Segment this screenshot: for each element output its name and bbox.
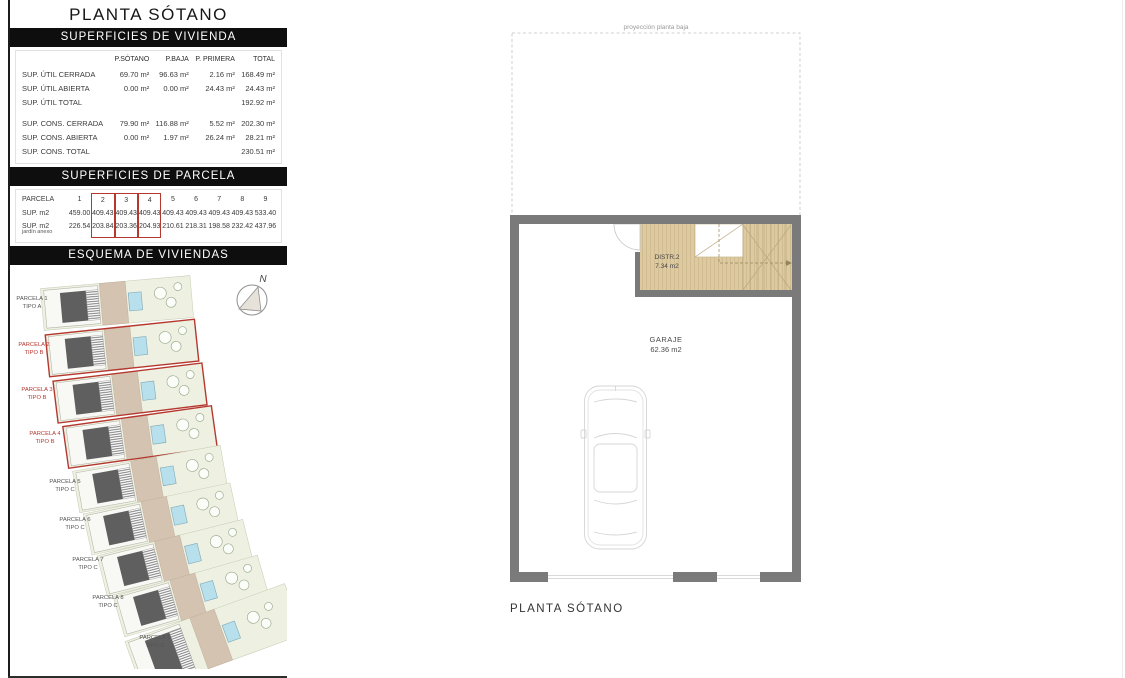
cell: 0.00 m²: [110, 131, 151, 145]
cell: 96.63 m²: [151, 67, 190, 81]
table-row: SUP. CONS. ABIERTA 0.00 m² 1.97 m² 26.24…: [20, 131, 277, 145]
sheet: { "page": { "title": "PLANTA SÓTANO" }, …: [0, 0, 1125, 678]
parcela-number: 3: [115, 193, 138, 207]
site-plan-parcels: PARCELA 1TIPO APARCELA 2TIPO BPARCELA 3T…: [16, 275, 287, 668]
col-header-baja: P.BAJA: [151, 54, 190, 67]
door-swing: [614, 224, 640, 250]
col-header: [20, 54, 110, 67]
floorplan-svg: proyección planta baja DISTR.2 7.34 m2: [490, 15, 830, 627]
parcel-tipo-label: TIPO C: [65, 525, 84, 531]
vivienda-table-box: P.SÓTANO P.BAJA P. PRIMERA TOTAL SUP. ÚT…: [15, 50, 282, 164]
parcela-number: 5: [161, 193, 184, 207]
plan-caption: PLANTA SÓTANO: [510, 602, 624, 615]
parcela-table: PARCELA123456789SUP. m2459.00409.43409.4…: [20, 193, 277, 238]
parcela-number: 2: [91, 193, 114, 207]
parcela-jardin-value: 204.93: [138, 220, 161, 238]
parcel-tipo-label: TIPO B: [27, 395, 46, 401]
row-label: SUP. CONS. TOTAL: [20, 145, 110, 159]
row-label: SUP. ÚTIL ABIERTA: [20, 81, 110, 95]
cell: 0.00 m²: [110, 81, 151, 95]
parcela-table-box: PARCELA123456789SUP. m2459.00409.43409.4…: [15, 189, 282, 243]
parcel-label: PARCELA 2: [18, 342, 49, 348]
cell: 5.52 m²: [191, 109, 237, 131]
parcela-row-label: SUP. m2: [20, 207, 68, 220]
parcel-label: PARCELA 6: [59, 517, 90, 523]
cell: 1.97 m²: [151, 131, 190, 145]
vivienda-table: P.SÓTANO P.BAJA P. PRIMERA TOTAL SUP. ÚT…: [20, 54, 277, 159]
cell: 192.92 m²: [237, 95, 277, 109]
cell: [110, 95, 151, 109]
upper-floor-projection-outline: [512, 33, 800, 217]
cell: [191, 95, 237, 109]
parcel-label: PARCELA 1: [16, 296, 47, 302]
parcela-sup-value: 409.43: [231, 207, 254, 220]
parcel-label: PARCELA 8: [92, 595, 123, 601]
distr-room: DISTR.2 7.34 m2: [640, 224, 792, 290]
parcela-sup-value: 409.43: [138, 207, 161, 220]
floorplan-drawing: proyección planta baja DISTR.2 7.34 m2: [490, 15, 830, 632]
parcela-sup-value: 409.43: [208, 207, 231, 220]
parcela-sup-value: 409.43: [115, 207, 138, 220]
table-header-row: P.SÓTANO P.BAJA P. PRIMERA TOTAL: [20, 54, 277, 67]
garage-door-lines: [548, 576, 760, 579]
col-header-total: TOTAL: [237, 54, 277, 67]
cell: 168.49 m²: [237, 67, 277, 81]
parcela-number: 1: [68, 193, 91, 207]
parcel-label: PARCELA 4: [29, 431, 61, 437]
cell: [110, 145, 151, 159]
parcel-tipo-label: TIPO C: [98, 603, 117, 609]
col-header-sotano: P.SÓTANO: [110, 54, 151, 67]
cell: 24.43 m²: [237, 81, 277, 95]
page-border-right: [1122, 0, 1123, 678]
parcela-jardin-value: 203.36: [115, 220, 138, 238]
room-area-garage: 62.36 m2: [650, 345, 681, 354]
parcel-label: PARCELA 7: [72, 557, 103, 563]
parcela-jardin-value: 203.84: [91, 220, 114, 238]
info-panel: PLANTA SÓTANO SUPERFICIES DE VIVIENDA P.…: [8, 0, 287, 676]
cell: 26.24 m²: [191, 131, 237, 145]
svg-text:N: N: [259, 274, 267, 285]
row-label: SUP. ÚTIL TOTAL: [20, 95, 110, 109]
parcel-tipo-label: TIPO C: [55, 487, 74, 493]
cell: 116.88 m²: [151, 109, 190, 131]
room-area-distr: 7.34 m2: [655, 263, 679, 270]
col-header-primera: P. PRIMERA: [191, 54, 237, 67]
cell: 28.21 m²: [237, 131, 277, 145]
site-plan: PARCELA 1TIPO APARCELA 2TIPO BPARCELA 3T…: [10, 267, 287, 669]
parcela-sup-value: 533.40: [254, 207, 277, 220]
parcel-label: PARCELA 5: [49, 479, 80, 485]
section-header-superficies-vivienda: SUPERFICIES DE VIVIENDA: [10, 28, 287, 47]
parcela-row-label: SUP. m2jardín anexo: [20, 220, 68, 238]
north-arrow-icon: N: [237, 274, 267, 315]
row-label: SUP. ÚTIL CERRADA: [20, 67, 110, 81]
cell: [151, 145, 190, 159]
cell: [191, 145, 237, 159]
section-header-esquema-viviendas: ESQUEMA DE VIVIENDAS: [10, 246, 287, 265]
parcela-sup-value: 409.43: [91, 207, 114, 220]
table-row: SUP. ÚTIL ABIERTA 0.00 m² 0.00 m² 24.43 …: [20, 81, 277, 95]
room-name-garage: GARAJE: [649, 335, 682, 344]
cell: 230.51 m²: [237, 145, 277, 159]
table-row: SUP. ÚTIL TOTAL 192.92 m²: [20, 95, 277, 109]
parcela-number: 9: [254, 193, 277, 207]
parcel-tipo-label: TIPO B: [35, 439, 54, 445]
parcela-sup-value: 409.43: [161, 207, 184, 220]
parcel-label: PARCELA 9: [139, 635, 170, 641]
parcela-sup-value: 409.43: [185, 207, 208, 220]
cell: 202.30 m²: [237, 109, 277, 131]
parcela-number: 7: [208, 193, 231, 207]
cell: [151, 95, 190, 109]
parcela-jardin-value: 198.58: [208, 220, 231, 238]
parcela-jardin-value: 210.61: [161, 220, 184, 238]
room-name-distr: DISTR.2: [655, 254, 680, 261]
table-row: SUP. CONS. TOTAL 230.51 m²: [20, 145, 277, 159]
projection-label: proyección planta baja: [623, 24, 688, 31]
parcela-row-label: PARCELA: [20, 193, 68, 207]
car-icon: [581, 386, 650, 549]
parcela-jardin-value: 218.31: [185, 220, 208, 238]
cell: 0.00 m²: [151, 81, 190, 95]
parcel-label: PARCELA 3: [21, 387, 52, 393]
parcela-jardin-value: 232.42: [231, 220, 254, 238]
section-header-superficies-parcela: SUPERFICIES DE PARCELA: [10, 167, 287, 186]
table-row: SUP. CONS. CERRADA 79.90 m² 116.88 m² 5.…: [20, 109, 277, 131]
parcel-tipo-label: TIPO C: [78, 565, 97, 571]
parcela-number: 8: [231, 193, 254, 207]
parcela-number: 6: [185, 193, 208, 207]
row-label: SUP. CONS. ABIERTA: [20, 131, 110, 145]
cell: 69.70 m²: [110, 67, 151, 81]
parcel-tipo-label: TIPO D: [145, 643, 164, 649]
cell: 24.43 m²: [191, 81, 237, 95]
parcel-tipo-label: TIPO B: [24, 350, 43, 356]
table-row: SUP. ÚTIL CERRADA 69.70 m² 96.63 m² 2.16…: [20, 67, 277, 81]
cell: 2.16 m²: [191, 67, 237, 81]
parcela-sup-value: 459.00: [68, 207, 91, 220]
parcela-jardin-value: 226.54: [68, 220, 91, 238]
cell: 79.90 m²: [110, 109, 151, 131]
row-label: SUP. CONS. CERRADA: [20, 109, 110, 131]
parcel-tipo-label: TIPO A: [23, 304, 42, 310]
parcela-jardin-value: 437.96: [254, 220, 277, 238]
page-title: PLANTA SÓTANO: [10, 0, 287, 28]
parcela-number: 4: [138, 193, 161, 207]
